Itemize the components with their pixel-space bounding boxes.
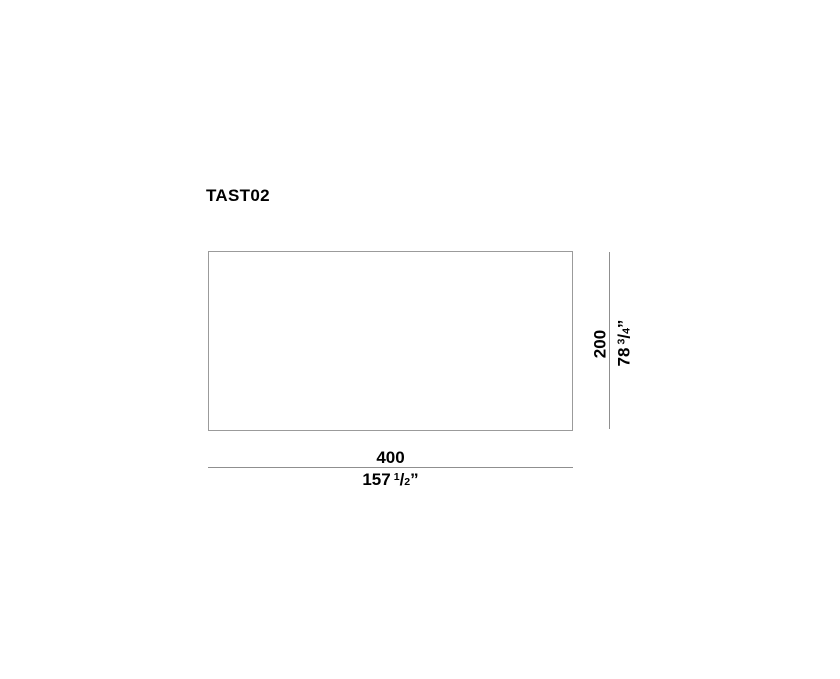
height-imperial-numerator: 3 (616, 339, 628, 345)
height-imperial-inch-mark: ” (615, 320, 634, 329)
height-imperial-fraction-slash: / (615, 334, 634, 339)
width-imperial-whole: 157 (362, 470, 390, 489)
height-imperial-denominator: 4 (621, 328, 633, 334)
dimension-drawing: TAST02 400 1571/2” 200 783/4” (0, 0, 840, 679)
width-imperial-inch-mark: ” (410, 470, 419, 489)
width-metric-label: 400 (208, 449, 573, 466)
product-outline-rectangle (208, 251, 573, 431)
width-dimension-line (208, 467, 573, 468)
height-imperial-whole: 78 (615, 348, 634, 367)
height-metric-label: 200 (592, 330, 609, 358)
height-imperial-label: 783/4” (616, 320, 633, 367)
width-imperial-label: 1571/2” (208, 471, 573, 488)
product-code-title: TAST02 (206, 186, 270, 206)
